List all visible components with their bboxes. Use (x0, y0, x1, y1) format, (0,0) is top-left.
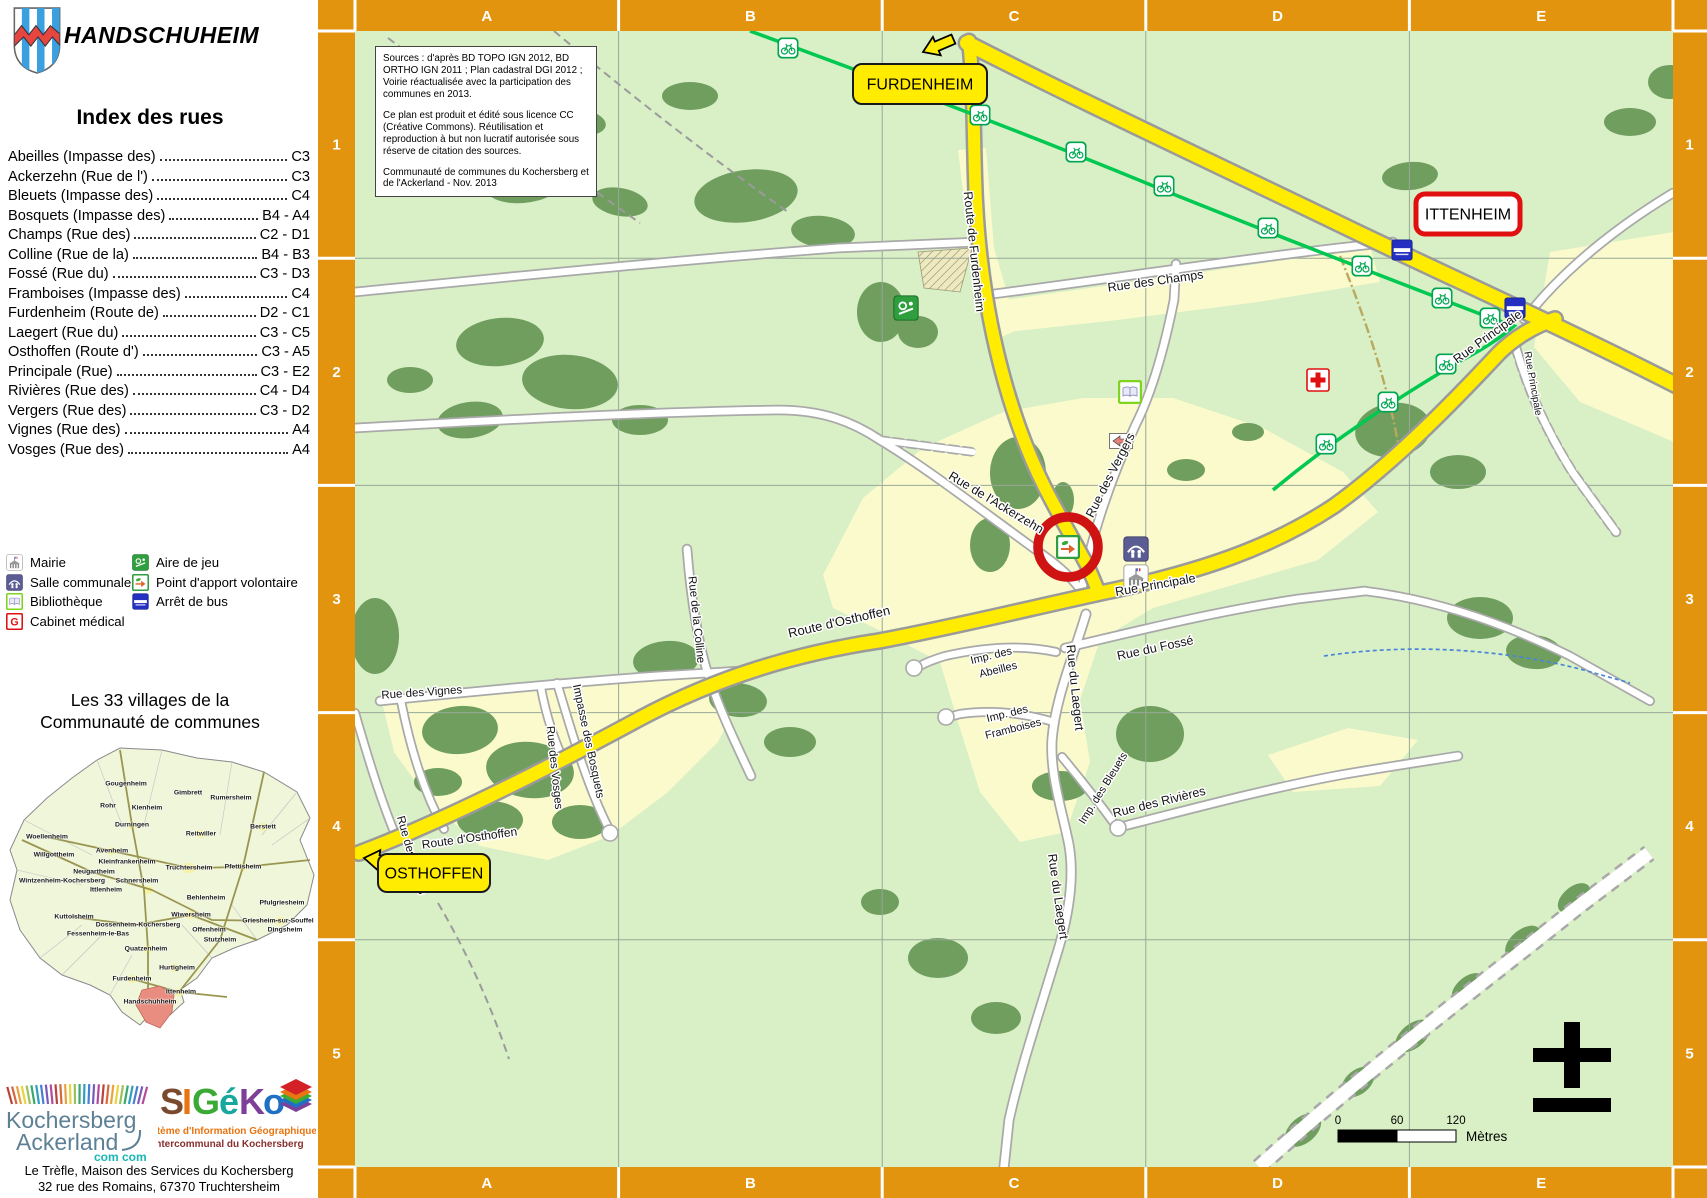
street-name: Colline (Rue de la) (8, 247, 129, 263)
grid-row-5: 5 (332, 1045, 340, 1062)
library-icon (1119, 381, 1141, 403)
bike-route-icon (1066, 142, 1086, 162)
grid-reference: B4 - B3 (261, 247, 310, 263)
leader-dots (133, 382, 256, 395)
leader-dots (143, 343, 258, 356)
grid-reference: C3 - C5 (260, 325, 310, 341)
grid-column-D: D (1272, 1175, 1283, 1192)
sigeko-sub2: Intercommunal du Kochersberg (158, 1139, 304, 1150)
leader-dots (133, 246, 257, 259)
sigeko-sub1: Système d'Information Géographique (158, 1126, 316, 1137)
grid-reference: D2 - C1 (260, 305, 310, 321)
coat-of-arms (10, 6, 64, 74)
place-box-osthoffen: OSTHOFFEN (378, 854, 490, 892)
street-name: Vergers (Rue des) (8, 403, 126, 419)
footer-address-line2: 32 rue des Romains, 67370 Truchtersheim (0, 1179, 318, 1194)
comcom-text: com com (94, 1150, 147, 1162)
grid-row-1: 1 (332, 137, 340, 154)
leader-dots (163, 304, 256, 317)
street-name: Rivières (Rue des) (8, 383, 129, 399)
community-hall-icon (1124, 537, 1148, 561)
street-name: Champs (Rue des) (8, 227, 130, 243)
logo-swoosh (122, 1130, 140, 1150)
kochersberg-ackerland-logo: Kochersberg Ackerland com com (6, 1078, 154, 1162)
grid-column-E: E (1536, 8, 1546, 25)
footer-address-line1: Le Trèfle, Maison des Services du Kocher… (0, 1163, 318, 1178)
pav-icon (132, 574, 149, 591)
grid-reference: C4 (291, 188, 310, 204)
bike-route-icon (1154, 176, 1174, 196)
scale-tick-0: 0 (1335, 1115, 1341, 1127)
index-entry: Laegert (Rue du)C3 - C5 (8, 324, 310, 344)
grid-reference: A4 (292, 442, 310, 458)
bike-route-icon (970, 105, 990, 125)
legend-item: Bibliothèque (6, 592, 132, 612)
street-name: Vignes (Rue des) (8, 422, 121, 438)
grid-row-4: 4 (332, 818, 341, 835)
sigeko-logo: SIGéKo Système d'Information Géographiqu… (158, 1078, 316, 1162)
place-box-ittenheim: ITTENHEIM (1416, 194, 1520, 234)
play-icon (132, 554, 149, 571)
grid-reference: C3 - E2 (261, 364, 310, 380)
legend-label: Aire de jeu (156, 555, 219, 570)
leader-dots (134, 226, 255, 239)
index-entry: Abeilles (Impasse des)C3 (8, 148, 310, 168)
grid-reference: C3 - D3 (260, 266, 310, 282)
index-entry: Colline (Rue de la)B4 - B3 (8, 246, 310, 266)
street-name: Bleuets (Impasse des) (8, 188, 153, 204)
sidebar: HANDSCHUHEIM Index des rues Abeilles (Im… (0, 0, 318, 1198)
grid-column-C: C (1009, 8, 1020, 25)
communaute-map (2, 735, 316, 1035)
grid-reference: C4 - D4 (260, 383, 310, 399)
grid-row-1: 1 (1685, 137, 1693, 154)
grid-row-2: 2 (1685, 364, 1693, 381)
grid-reference: B4 - A4 (262, 208, 310, 224)
leader-dots (117, 363, 257, 376)
book-icon (6, 593, 23, 610)
legend-item: Cabinet médical (6, 612, 132, 632)
street-name: Fossé (Rue du) (8, 266, 109, 282)
bike-route-icon (1258, 218, 1278, 238)
street-name: Osthoffen (Route d') (8, 344, 139, 360)
grid-row-4: 4 (1685, 818, 1694, 835)
grid-reference: C3 - D2 (260, 403, 310, 419)
grid-column-B: B (745, 1175, 756, 1192)
villages-heading-line2: Communauté de communes (0, 712, 300, 733)
place-box-furdenheim: FURDENHEIM (853, 64, 987, 104)
legend-label: Salle communale (30, 575, 131, 590)
leader-dots (160, 148, 288, 161)
sigeko-letter: I (182, 1081, 192, 1122)
index-entry: Furdenheim (Route de)D2 - C1 (8, 304, 310, 324)
street-name: Vosges (Rue des) (8, 442, 124, 458)
grid-column-E: E (1536, 1175, 1546, 1192)
page-title: HANDSCHUHEIM (64, 22, 259, 49)
index-entry: Framboises (Impasse des)C4 (8, 285, 310, 305)
leader-dots (128, 441, 288, 454)
g-icon (6, 613, 23, 630)
leader-dots (125, 421, 289, 434)
villages-heading-line1: Les 33 villages de la (0, 690, 300, 711)
legend-label: Cabinet médical (30, 614, 125, 629)
place-name: FURDENHEIM (867, 77, 974, 94)
bike-route-icon (1432, 288, 1452, 308)
sigeko-letter: G (192, 1081, 220, 1122)
grid-reference: C2 - D1 (260, 227, 310, 243)
street-name: Principale (Rue) (8, 364, 113, 380)
legend-item: Aire de jeu (132, 553, 316, 573)
salle-icon (6, 574, 23, 591)
leader-dots (130, 402, 255, 415)
index-heading: Index des rues (0, 106, 300, 130)
legend-label: Mairie (30, 555, 66, 570)
legend-item: Mairie (6, 553, 132, 573)
index-entry: Bosquets (Impasse des)B4 - A4 (8, 207, 310, 227)
grid-reference: A4 (292, 422, 310, 438)
sigeko-letter: K (239, 1081, 265, 1122)
leader-dots (113, 265, 256, 278)
grid-row-3: 3 (1685, 591, 1693, 608)
street-index: Abeilles (Impasse des)C3Ackerzehn (Rue d… (8, 148, 310, 460)
index-entry: Vergers (Rue des)C3 - D2 (8, 402, 310, 422)
recycling-point-icon (1057, 536, 1079, 558)
grid-reference: C3 - A5 (261, 344, 310, 360)
sources-paragraph-3: Communauté de communes du Kochersberg et… (383, 167, 589, 191)
map-area: G (318, 0, 1707, 1198)
bike-route-icon (1378, 392, 1398, 412)
grid-column-B: B (745, 8, 756, 25)
legend-label: Bibliothèque (30, 594, 103, 609)
street-name: Laegert (Rue du) (8, 325, 118, 341)
place-name: OSTHOFFEN (385, 866, 484, 883)
scale-tick-60: 60 (1391, 1115, 1404, 1127)
leader-dots (185, 285, 288, 298)
sources-paragraph-1: Sources : d'après BD TOPO IGN 2012, BD O… (383, 53, 589, 101)
index-entry: Champs (Rue des)C2 - D1 (8, 226, 310, 246)
sources-note: Sources : d'après BD TOPO IGN 2012, BD O… (375, 46, 597, 197)
grid-column-D: D (1272, 8, 1283, 25)
index-entry: Rivières (Rue des)C4 - D4 (8, 382, 310, 402)
leader-dots (152, 168, 287, 181)
grid-row-5: 5 (1685, 1045, 1693, 1062)
legend-item: Arrêt de bus (132, 592, 316, 612)
grid-reference: C3 (291, 149, 310, 165)
index-entry: Vosges (Rue des)A4 (8, 441, 310, 461)
legend-label: Arrêt de bus (156, 594, 228, 609)
place-name: ITTENHEIM (1425, 207, 1511, 224)
index-entry: Vignes (Rue des)A4 (8, 421, 310, 441)
bike-route-icon (1352, 256, 1372, 276)
sigeko-letter: é (219, 1081, 239, 1122)
medical-office-icon (1307, 369, 1329, 391)
index-entry: Ackerzehn (Rue de l')C3 (8, 168, 310, 188)
legend-item: Salle communale (6, 573, 132, 593)
sigeko-letter: S (160, 1081, 184, 1122)
index-entry: Fossé (Rue du)C3 - D3 (8, 265, 310, 285)
grid-column-A: A (481, 8, 492, 25)
grid-column-A: A (481, 1175, 492, 1192)
grid-reference: C4 (291, 286, 310, 302)
bike-route-icon (778, 38, 798, 58)
street-name: Ackerzehn (Rue de l') (8, 169, 148, 185)
playground-icon (894, 296, 918, 320)
index-entry: Bleuets (Impasse des)C4 (8, 187, 310, 207)
index-entry: Osthoffen (Route d')C3 - A5 (8, 343, 310, 363)
index-entry: Principale (Rue)C3 - E2 (8, 363, 310, 383)
sources-paragraph-2: Ce plan est produit et édité sous licenc… (383, 110, 589, 158)
legend-item: Point d'apport volontaire (132, 573, 316, 593)
leader-dots (169, 207, 258, 220)
leader-dots (157, 187, 287, 200)
street-name: Bosquets (Impasse des) (8, 208, 165, 224)
legend-label: Point d'apport volontaire (156, 575, 298, 590)
bike-route-icon (1316, 434, 1336, 454)
street-name: Abeilles (Impasse des) (8, 149, 156, 165)
bus-icon (132, 593, 149, 610)
grid-column-C: C (1009, 1175, 1020, 1192)
street-name: Furdenheim (Route de) (8, 305, 159, 321)
scale-unit: Mètres (1466, 1129, 1508, 1144)
mairie-icon (6, 554, 23, 571)
leader-dots (122, 324, 255, 337)
grid-row-3: 3 (332, 591, 340, 608)
grid-row-2: 2 (332, 364, 340, 381)
bus-stop-icon (1392, 240, 1412, 260)
scale-tick-120: 120 (1446, 1115, 1465, 1127)
grid-reference: C3 (291, 169, 310, 185)
street-name: Framboises (Impasse des) (8, 286, 181, 302)
